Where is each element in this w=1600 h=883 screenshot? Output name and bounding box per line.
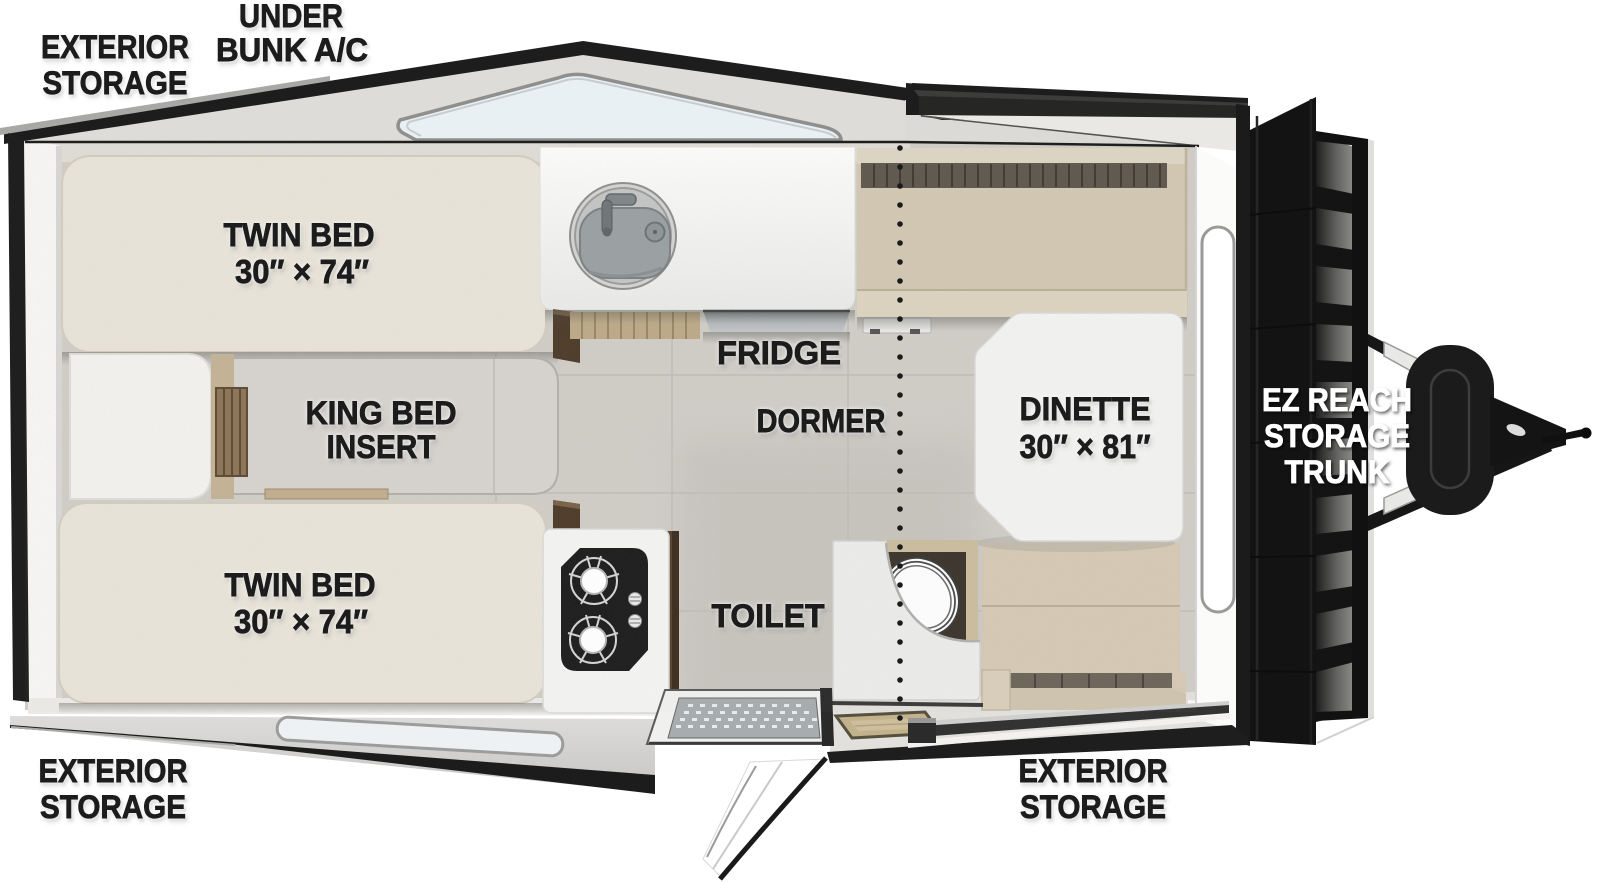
svg-text:30″ × 81″: 30″ × 81″: [1020, 428, 1151, 465]
svg-text:UNDER: UNDER: [239, 0, 343, 34]
svg-text:30″ × 74″: 30″ × 74″: [234, 603, 368, 640]
svg-text:DINETTE: DINETTE: [1020, 391, 1151, 427]
svg-text:FRIDGE: FRIDGE: [717, 335, 841, 371]
svg-text:EXTERIOR: EXTERIOR: [39, 753, 188, 789]
svg-text:EXTERIOR: EXTERIOR: [41, 29, 189, 65]
svg-text:STORAGE: STORAGE: [43, 65, 188, 101]
svg-text:KING BED: KING BED: [306, 395, 457, 431]
svg-text:EXTERIOR: EXTERIOR: [1019, 753, 1168, 789]
svg-text:TRUNK: TRUNK: [1285, 454, 1390, 490]
svg-text:DORMER: DORMER: [757, 403, 886, 439]
svg-text:STORAGE: STORAGE: [1020, 789, 1166, 825]
svg-text:TOILET: TOILET: [712, 598, 825, 634]
svg-text:30″ × 74″: 30″ × 74″: [235, 253, 369, 290]
svg-text:STORAGE: STORAGE: [40, 789, 186, 825]
svg-text:TWIN BED: TWIN BED: [225, 567, 376, 603]
svg-text:INSERT: INSERT: [327, 429, 436, 465]
svg-text:TWIN BED: TWIN BED: [224, 217, 375, 253]
svg-text:STORAGE: STORAGE: [1264, 418, 1410, 454]
svg-text:EZ REACH: EZ REACH: [1262, 382, 1412, 418]
svg-text:BUNK A/C: BUNK A/C: [216, 32, 368, 68]
